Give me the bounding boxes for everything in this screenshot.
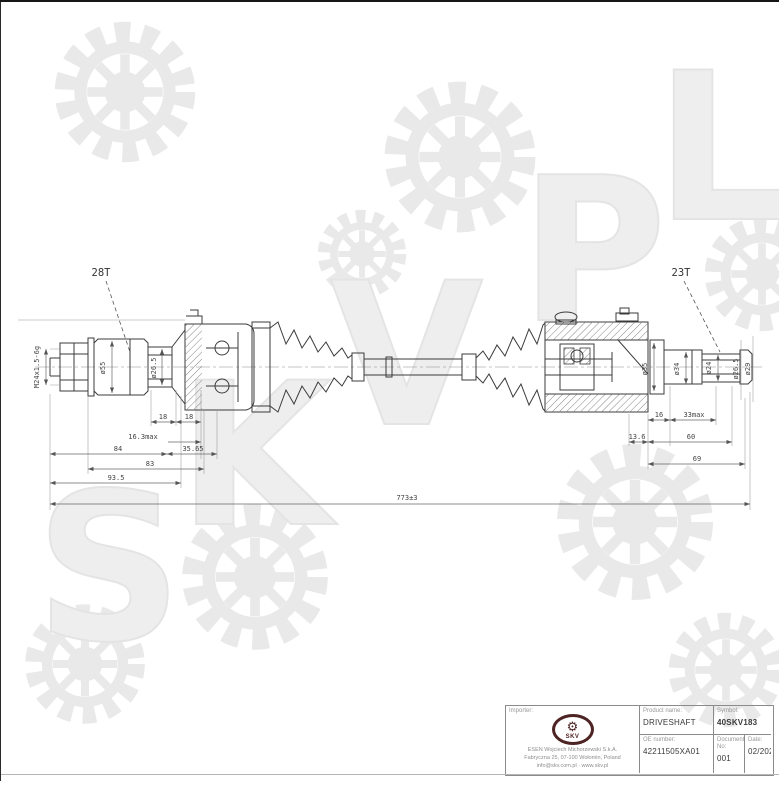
product-name-cell: Product name: DRIVESHAFT (639, 706, 713, 734)
sheet-bottom-rule (0, 774, 779, 775)
symbol-value: 40SKV183 (717, 718, 768, 727)
technical-drawing-page: { "watermark": { "letters": ["S", "K", "… (0, 0, 779, 779)
dim-value: 69 (693, 455, 701, 463)
importer-cell: Importer: ⚙ SKV ESEN Wojciech Michorzews… (506, 706, 639, 773)
overall-length-value: 773±3 (396, 494, 417, 502)
sheet-left-edge (0, 2, 1, 781)
left-spline-callout: 28T (92, 267, 112, 279)
oe-number-label: OE number: (643, 737, 710, 744)
dim-value: 83 (146, 460, 154, 468)
dim-value: 13.6 (629, 433, 646, 441)
dim-value: 33max (683, 411, 704, 419)
skv-logo: ⚙ SKV (552, 714, 594, 745)
dim-value: 16 (655, 411, 663, 419)
address-line: ESEN Wojciech Michorzewski S.k.A. (524, 747, 621, 755)
extension-lines (18, 320, 753, 510)
oe-number-value: 42211505XA01 (643, 747, 710, 756)
diameter-value: ø55 (99, 362, 107, 375)
symbol-cell: Symbol: 40SKV183 (713, 706, 771, 734)
date-cell: Date: 02/2025 (744, 734, 771, 773)
thread-spec: M24x1.5-6g (33, 346, 41, 388)
date-value: 02/2025 (748, 747, 768, 756)
document-no-value: 001 (717, 754, 741, 763)
diameter-value: ø35 (641, 363, 649, 376)
dim-value: 60 (687, 433, 695, 441)
right-spline-callout: 23T (672, 267, 692, 279)
driveshaft-drawing: 18 18 16.3max 84 35.65 83 93.5 773±3 16 … (0, 2, 779, 781)
oe-number-cell: OE number: 42211505XA01 (639, 734, 713, 773)
diameter-value: ø34 (673, 363, 681, 376)
diameter-value: ø26.5 (150, 357, 158, 378)
logo-text: SKV (566, 734, 580, 740)
dim-value: 84 (114, 445, 122, 453)
document-no-label: Document No: (717, 737, 741, 751)
gear-icon: ⚙ (567, 720, 579, 733)
symbol-label: Symbol: (717, 708, 768, 715)
document-no-cell: Document No: 001 (713, 734, 744, 773)
address-line: Fabryczna 25, 07-100 Wołomin, Poland (524, 755, 621, 763)
inner-joint-right (545, 308, 648, 412)
diameter-value: ø24 (705, 362, 713, 375)
importer-label: Importer: (509, 708, 533, 715)
date-label: Date: (748, 737, 768, 744)
title-block: Importer: ⚙ SKV ESEN Wojciech Michorzews… (505, 705, 774, 776)
dim-value: 18 (159, 413, 167, 421)
importer-address: ESEN Wojciech Michorzewski S.k.A. Fabryc… (524, 747, 621, 771)
product-name-value: DRIVESHAFT (643, 718, 710, 727)
dim-value: 35.65 (182, 445, 203, 453)
address-line: info@skv.com.pl · www.skv.pl (524, 763, 621, 771)
dim-value: 18 (185, 413, 193, 421)
diameter-value: ø29 (744, 363, 752, 376)
dim-value: 16.3max (128, 433, 158, 441)
diameter-value: ø26.5 (732, 358, 740, 379)
product-name-label: Product name: (643, 708, 710, 715)
dim-value: 93.5 (108, 474, 125, 482)
